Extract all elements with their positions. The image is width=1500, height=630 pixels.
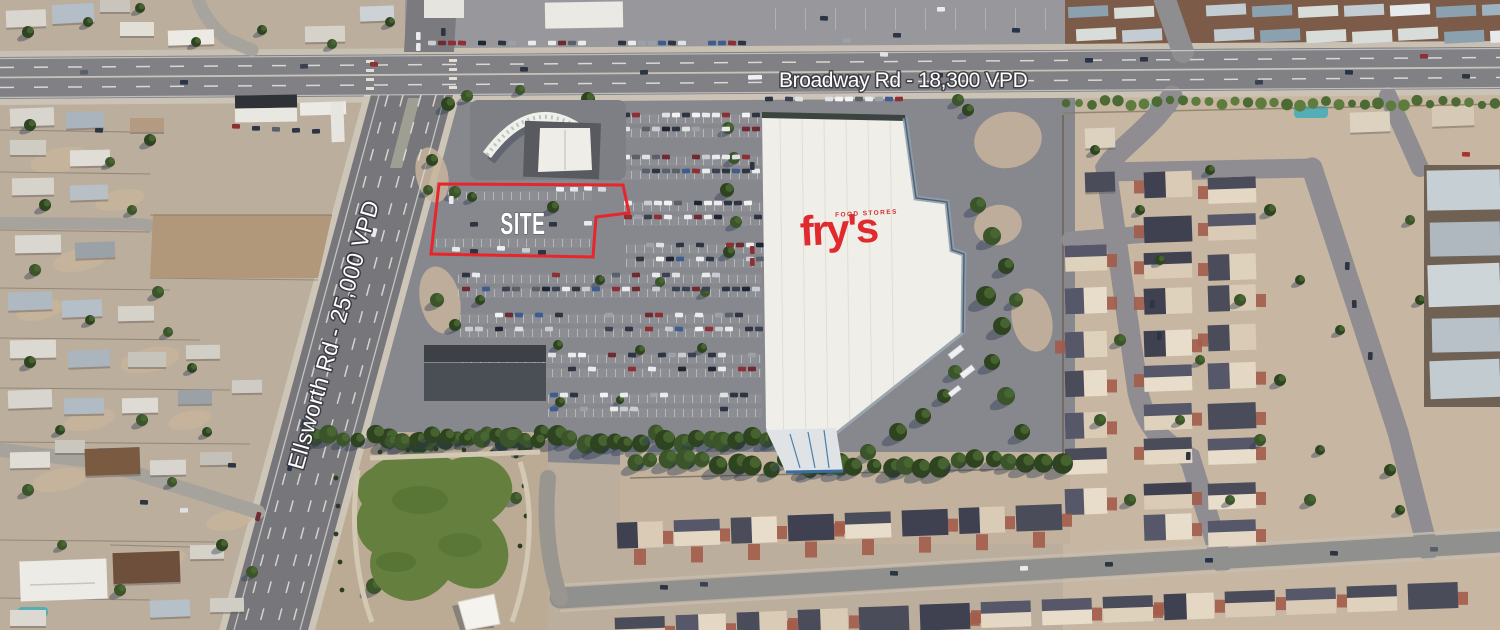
house-roof-shade [1042, 598, 1092, 611]
tree [109, 158, 115, 164]
car [735, 313, 743, 318]
stall-line [595, 329, 596, 337]
tree [1129, 495, 1136, 502]
stall-line [732, 355, 733, 363]
car [734, 201, 742, 206]
car [706, 257, 714, 262]
stall-line [746, 409, 747, 417]
tree [1041, 455, 1051, 465]
driveway [1134, 447, 1144, 460]
tree [967, 105, 974, 112]
stall-line [642, 355, 643, 363]
car [532, 287, 540, 292]
hedge-shrub [1075, 99, 1083, 107]
car [180, 80, 188, 85]
house [8, 291, 53, 311]
hedge-shrub [1243, 97, 1253, 107]
car [562, 287, 570, 292]
car [748, 353, 756, 358]
house-roof-shade [1144, 482, 1192, 495]
house-roof-shade [1208, 176, 1256, 189]
tree [1094, 146, 1100, 152]
hedge-shrub [1464, 98, 1474, 108]
car [140, 500, 148, 505]
stall-line [701, 395, 702, 403]
tree [195, 38, 201, 44]
car [497, 246, 505, 251]
house-roof-shade [615, 616, 665, 629]
stall-line [723, 217, 724, 225]
car [682, 168, 690, 173]
stall-line [611, 275, 612, 283]
tree [1000, 318, 1010, 328]
trailer-home [1214, 27, 1255, 41]
hedge-shrub [1281, 99, 1293, 111]
car [675, 327, 683, 332]
stall-line [955, 8, 956, 30]
car [756, 243, 764, 248]
car [825, 97, 833, 102]
car [568, 41, 576, 46]
house-roof-shade [959, 507, 981, 534]
stall-line [580, 239, 581, 247]
tree [1015, 294, 1023, 302]
car [180, 508, 188, 513]
driveway [1192, 523, 1202, 536]
stall-line [463, 239, 464, 247]
car [744, 201, 752, 206]
driveway [1198, 186, 1208, 199]
car [656, 257, 664, 262]
stall-line [730, 115, 731, 123]
car [714, 201, 722, 206]
house [8, 389, 53, 409]
car [692, 127, 700, 132]
stall-line [611, 289, 612, 297]
hedge-shrub [1230, 97, 1239, 106]
car [652, 287, 660, 292]
stall-line [631, 171, 632, 179]
house [232, 380, 262, 394]
tree [1239, 295, 1246, 302]
shrub [434, 447, 439, 452]
house [70, 150, 110, 167]
car [634, 215, 642, 220]
hedge-shrub [1372, 97, 1384, 109]
car [1430, 547, 1438, 552]
hedge-shrub [1152, 96, 1163, 107]
stall-line [579, 369, 580, 377]
car [696, 257, 704, 262]
stall-line [466, 192, 467, 200]
tree [1419, 296, 1425, 302]
car [620, 407, 628, 412]
car [715, 313, 723, 318]
stall-line [635, 259, 636, 267]
stall-line [589, 239, 590, 247]
stall-line [615, 369, 616, 377]
house [85, 447, 141, 476]
stall-line [640, 129, 641, 137]
car [658, 41, 666, 46]
car [660, 585, 668, 590]
stall-line [611, 395, 612, 403]
tree [623, 438, 631, 446]
car [726, 243, 734, 248]
trailer-home [1436, 5, 1477, 18]
car [672, 169, 680, 174]
car [478, 41, 486, 46]
pad-building [523, 121, 601, 180]
car [722, 127, 730, 132]
tree [990, 228, 1000, 238]
car [668, 41, 676, 46]
east-industrial-buildings [1424, 165, 1500, 407]
stall-line [705, 369, 706, 377]
tree [447, 98, 455, 106]
tree [973, 451, 983, 461]
stall-line [647, 395, 648, 403]
car [1462, 152, 1470, 157]
stall-line [703, 329, 704, 337]
house-roof-shade [1208, 519, 1256, 532]
stall-line [568, 329, 569, 337]
stall-line [559, 329, 560, 337]
car [704, 201, 712, 206]
tree [666, 451, 676, 461]
shrub [462, 448, 467, 453]
house [75, 241, 116, 258]
driveway [849, 615, 859, 628]
stall-line [606, 369, 607, 377]
car [752, 113, 760, 118]
car [664, 215, 672, 220]
car [588, 367, 596, 372]
house-roof-shade [1144, 288, 1166, 315]
house [1408, 582, 1459, 610]
car [644, 201, 652, 206]
trailer-home [1122, 28, 1163, 42]
trailer-home [1444, 30, 1485, 44]
car [676, 243, 684, 248]
stall-line [606, 355, 607, 363]
crosswalk-tick [449, 77, 457, 80]
tree [896, 424, 906, 434]
tree [536, 434, 544, 442]
tree [507, 429, 518, 440]
car [742, 113, 750, 118]
car [672, 127, 680, 132]
stall-line [985, 8, 986, 30]
stall-line [746, 275, 747, 283]
car [718, 367, 726, 372]
driveway [634, 549, 646, 565]
house [10, 610, 46, 626]
hedge-shrub [1398, 99, 1410, 111]
car [584, 221, 592, 226]
parking-row [626, 258, 762, 268]
stall-line [719, 289, 720, 297]
house-shadow [120, 36, 154, 38]
tree [1409, 216, 1415, 222]
shrub [338, 560, 343, 565]
tree [1209, 166, 1215, 172]
car [740, 393, 748, 398]
house-roof-shade [798, 609, 821, 630]
tree [701, 344, 707, 350]
tree [251, 567, 258, 574]
stall-line [667, 315, 668, 323]
car [756, 257, 764, 262]
car [582, 287, 590, 292]
car [644, 215, 652, 220]
stall-line [622, 315, 623, 323]
car [1150, 300, 1155, 308]
stall-line [734, 259, 735, 267]
driveway [1198, 263, 1208, 276]
car [552, 287, 560, 292]
stall-line [530, 275, 531, 283]
house [1432, 105, 1475, 126]
tree [540, 426, 548, 434]
stall-line [602, 289, 603, 297]
stall-line [503, 275, 504, 283]
car [648, 41, 656, 46]
driveway [777, 526, 787, 539]
car [632, 155, 640, 160]
solar-canopy-building [424, 345, 546, 401]
shrub [406, 448, 411, 453]
house [210, 598, 244, 613]
car [452, 247, 460, 252]
stall-line [656, 409, 657, 417]
stall-line [454, 239, 455, 247]
stall-line [674, 395, 675, 403]
house [100, 0, 130, 12]
stall-line [757, 157, 758, 165]
stall-line [548, 409, 549, 417]
stall-line [694, 329, 695, 337]
stall-line [642, 369, 643, 377]
stall-line [538, 192, 539, 200]
car [742, 155, 750, 160]
house-roof-shade [1225, 590, 1275, 603]
house [55, 440, 85, 453]
tree [1319, 446, 1325, 452]
crosswalk-tick [449, 68, 457, 71]
car [750, 162, 755, 170]
car [765, 97, 773, 102]
shrub [334, 476, 339, 481]
tree [1159, 256, 1165, 262]
stall-line [593, 395, 594, 403]
stall-line [602, 409, 603, 417]
stall-line [460, 315, 461, 323]
stall-line [568, 315, 569, 323]
car [855, 97, 863, 102]
stall-line [748, 315, 749, 323]
driveway [788, 618, 798, 630]
driveway [1198, 334, 1208, 347]
car [556, 187, 564, 192]
stall-line [757, 315, 758, 323]
car [558, 41, 566, 46]
stall-line [583, 192, 584, 200]
trailer-home [1352, 30, 1393, 44]
car [700, 582, 708, 587]
tree [587, 93, 595, 101]
house [1144, 215, 1193, 243]
hedge-shrub [1348, 100, 1356, 108]
stall-line [721, 171, 722, 179]
car [718, 353, 726, 358]
car [695, 313, 703, 318]
house-shadow [130, 132, 164, 134]
house-roof-shade [1208, 437, 1256, 450]
stall-line [584, 275, 585, 283]
stall-line [494, 289, 495, 297]
house [66, 111, 105, 128]
hedge-shrub [1426, 100, 1434, 108]
car [542, 287, 550, 292]
house [15, 235, 61, 254]
car [441, 28, 446, 36]
hedge-shrub [1321, 96, 1331, 106]
tree [515, 493, 522, 500]
car [678, 41, 686, 46]
stall-line [687, 203, 688, 211]
house [305, 26, 345, 43]
stall-line [712, 315, 713, 323]
trailer-home [1252, 4, 1293, 17]
car [628, 41, 636, 46]
stall-line [548, 395, 549, 403]
car [694, 201, 702, 206]
driveway [1107, 297, 1117, 310]
car [702, 273, 710, 278]
car [748, 75, 762, 80]
house-roof-shade [1144, 172, 1166, 199]
car [1140, 57, 1148, 62]
stall-line [472, 239, 473, 247]
tree [984, 288, 995, 299]
tree [648, 454, 656, 462]
stall-line [687, 355, 688, 363]
tree [957, 95, 964, 102]
tree [695, 431, 704, 440]
house-roof-shade [1144, 251, 1192, 264]
car [725, 313, 733, 318]
car [708, 41, 716, 46]
tree [131, 206, 137, 212]
car [665, 327, 673, 332]
stall-line [728, 275, 729, 283]
car [694, 215, 702, 220]
tree [464, 433, 471, 440]
car [470, 249, 478, 254]
car [580, 407, 588, 412]
car [1157, 332, 1162, 340]
tree [990, 355, 999, 364]
house-roof-shade [1347, 585, 1397, 598]
tree [1061, 455, 1072, 466]
tree [726, 184, 734, 192]
car [1255, 80, 1263, 85]
house-roof-shade [1144, 437, 1192, 450]
tree [436, 294, 444, 302]
house [150, 460, 186, 476]
stall-line [685, 329, 686, 337]
car [750, 258, 755, 266]
car [502, 287, 510, 292]
stall-line [676, 157, 677, 165]
car [715, 327, 723, 332]
car [1012, 28, 1020, 33]
car [666, 257, 674, 262]
hedge-shrub [1269, 98, 1278, 107]
tree [735, 217, 742, 224]
car [449, 196, 454, 204]
car [620, 393, 628, 398]
stall-line [514, 329, 515, 337]
car [692, 155, 700, 160]
crosswalk-tick [366, 69, 374, 72]
stall-line [458, 275, 459, 283]
car [584, 186, 592, 191]
driveway [1005, 516, 1015, 529]
car [232, 124, 240, 129]
hedge-shrub [1062, 99, 1071, 108]
stall-line [703, 315, 704, 323]
stall-line [626, 259, 627, 267]
car [548, 41, 556, 46]
car [662, 155, 670, 160]
stall-line [739, 329, 740, 337]
stall-line [476, 289, 477, 297]
car [515, 327, 523, 332]
car [520, 67, 528, 72]
stall-line [640, 115, 641, 123]
car [732, 287, 740, 292]
house-roof-shade [731, 517, 753, 544]
car [592, 287, 600, 292]
car [625, 327, 633, 332]
car [632, 287, 640, 292]
tree [1389, 465, 1396, 472]
house-roof-shade [1208, 254, 1230, 281]
tree [552, 202, 559, 209]
house [788, 514, 835, 542]
car [865, 97, 873, 102]
tree [167, 328, 173, 334]
stall-line [660, 369, 661, 377]
car [570, 187, 578, 192]
tree [389, 18, 395, 24]
tree [171, 478, 177, 484]
car [705, 327, 713, 332]
tree [61, 541, 67, 547]
car [600, 393, 608, 398]
tree [430, 428, 439, 437]
trailer-home [1398, 27, 1439, 41]
car [662, 169, 670, 174]
car [642, 155, 650, 160]
house-shadow [55, 453, 85, 455]
car [656, 243, 664, 248]
car [438, 41, 446, 46]
house [112, 551, 180, 584]
tree [119, 585, 126, 592]
